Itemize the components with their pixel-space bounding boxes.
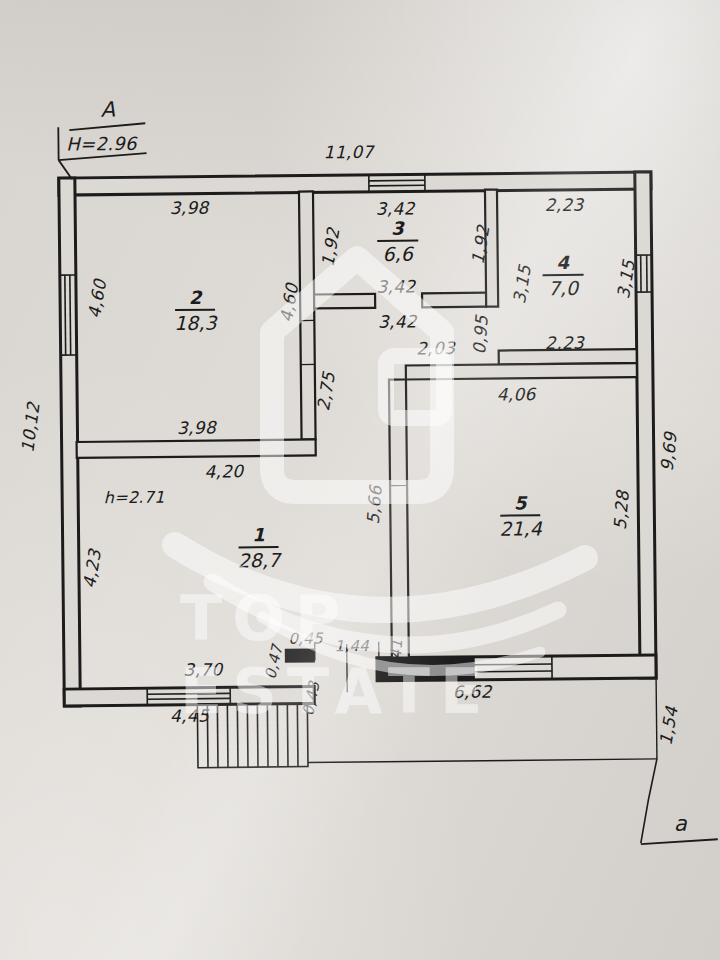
- dim-label: 3,42: [378, 311, 417, 331]
- dim-label: 0,95: [469, 314, 492, 354]
- dim-label: 4,45: [170, 706, 209, 726]
- dim-label: 5,66: [363, 485, 386, 525]
- dim-label: 4,06: [496, 384, 535, 404]
- wall-top: [59, 172, 651, 195]
- dim-label: 2,23: [545, 333, 584, 353]
- dim-label: 3,98: [177, 418, 216, 438]
- dim-label: 5,28: [610, 490, 633, 530]
- wall-room5-top: [406, 363, 637, 379]
- dim-label: 11,07: [323, 142, 373, 163]
- room-number: 3: [377, 220, 418, 242]
- room-area: 7,0: [543, 277, 584, 300]
- dim-label: 2,03: [416, 338, 455, 358]
- dim-label: 6,62: [453, 682, 492, 702]
- porch-stairs: [197, 704, 308, 768]
- dim-label: 1,44: [334, 637, 369, 655]
- floorplan-photo: 11,07 3,98 3,42 2,23 1,92 1,92 3,15 3,15…: [0, 0, 720, 960]
- room-label-4: 4 7,0: [542, 254, 583, 300]
- section-height-top: H=2.96: [66, 133, 137, 155]
- room-area: 21,4: [499, 517, 542, 540]
- wall-right: [635, 172, 656, 678]
- floor-plan: 11,07 3,98 3,42 2,23 1,92 1,92 3,15 3,15…: [0, 0, 720, 960]
- room-number: 4: [542, 254, 583, 276]
- dim-label: 2,23: [544, 195, 583, 215]
- wall-room2-bottom: [77, 439, 316, 458]
- ceiling-height-note: h=2.71: [104, 488, 165, 508]
- room-label-2: 2 18,3: [174, 289, 217, 335]
- room-label-5: 5 21,4: [499, 494, 542, 540]
- dim-label: 4,20: [204, 461, 243, 481]
- entry-pier: [285, 648, 315, 662]
- room-label-1: 1 28,7: [237, 526, 280, 572]
- room-label-3: 3 6,6: [377, 220, 418, 266]
- dim-label: 3,70: [183, 659, 222, 679]
- wall-room3-bottom-left: [314, 294, 375, 309]
- room-number: 2: [175, 289, 216, 311]
- dim-label: 0,45: [288, 629, 323, 647]
- section-mark-bottom: а: [674, 812, 687, 836]
- room-area: 6,6: [377, 242, 418, 265]
- room-number: 5: [500, 494, 541, 516]
- dim-label: 3,98: [170, 198, 209, 218]
- dim-label: 0,41: [386, 639, 407, 675]
- dim-label: 3,42: [376, 198, 415, 218]
- dim-label: 3,42: [376, 276, 415, 296]
- room-area: 28,7: [238, 549, 281, 572]
- wall-room3-bottom-right: [422, 293, 486, 308]
- section-mark-top: А: [101, 98, 116, 122]
- room-number: 1: [238, 526, 279, 548]
- room-area: 18,3: [174, 312, 217, 335]
- wall-room1-room5: [389, 380, 409, 658]
